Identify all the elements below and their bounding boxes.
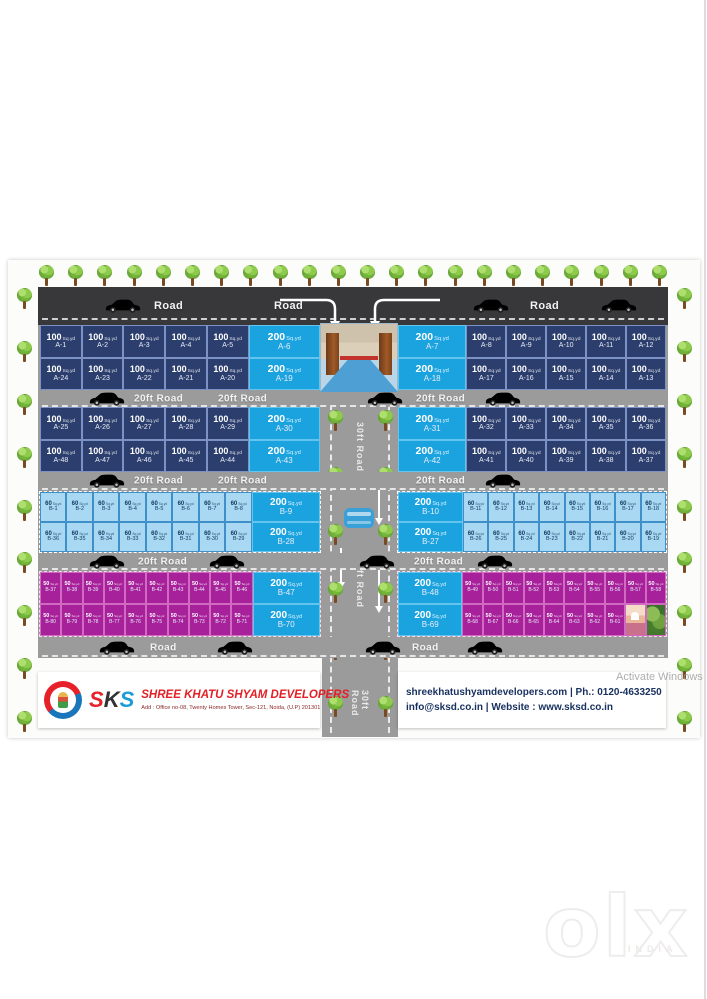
plot-B-12: 60Sq.ydB-12	[488, 492, 513, 522]
plot-B-35: 60Sq.ydB-35	[66, 522, 92, 552]
vertical-road-label: 30ft Road	[350, 690, 370, 737]
gate-banner	[340, 356, 377, 360]
plot-B-22: 60Sq.ydB-22	[565, 522, 590, 552]
plot-A-31: 200Sq.ydA-31	[398, 407, 466, 440]
plot-B-14: 60Sq.ydB-14	[539, 492, 564, 522]
plot-A-3: 100Sq.ydA-3	[123, 325, 165, 358]
plot-B-15: 60Sq.ydB-15	[565, 492, 590, 522]
plot-row: 200Sq.ydA-18100Sq.ydA-17100Sq.ydA-16100S…	[398, 358, 666, 391]
road-label: 20ft Road	[134, 476, 183, 487]
plot-A-46: 100Sq.ydA-46	[123, 440, 165, 473]
plot-A-8: 100Sq.ydA-8	[466, 325, 506, 358]
plot-B-78: 50Sq.ydB-78	[83, 604, 104, 636]
tree-icon	[16, 711, 33, 733]
plot-B-27: 200Sq.ydB-27	[398, 522, 463, 552]
plot-A-41: 100Sq.ydA-41	[466, 440, 506, 473]
car-side-icon	[366, 391, 404, 407]
plot-B-4: 60Sq.ydB-4	[119, 492, 145, 522]
plot-A-11: 100Sq.ydA-11	[586, 325, 626, 358]
plot-B-20: 60Sq.ydB-20	[615, 522, 640, 552]
plot-A-48: 100Sq.ydA-48	[40, 440, 82, 473]
plot-B-23: 60Sq.ydB-23	[539, 522, 564, 552]
tree-icon	[359, 265, 376, 287]
plot-A-4: 100Sq.ydA-4	[165, 325, 207, 358]
road-label: 20ft Road	[414, 556, 463, 567]
plot-A-17: 100Sq.ydA-17	[466, 358, 506, 391]
tree-icon	[447, 265, 464, 287]
plot-row: 200Sq.ydA-31100Sq.ydA-32100Sq.ydA-33100S…	[398, 407, 666, 440]
plot-A-47: 100Sq.ydA-47	[82, 440, 124, 473]
plot-B-69: 200Sq.ydB-69	[398, 604, 462, 636]
tree-icon	[676, 341, 693, 363]
plot-B-36: 60Sq.ydB-36	[40, 522, 66, 552]
plot-row: 60Sq.ydB-3660Sq.ydB-3560Sq.ydB-3460Sq.yd…	[40, 522, 320, 552]
road-label: 20ft Road	[134, 393, 183, 404]
plot-row: 100Sq.ydA-1100Sq.ydA-2100Sq.ydA-3100Sq.y…	[40, 325, 320, 358]
plot-B-19: 60Sq.ydB-19	[641, 522, 666, 552]
plot-B-32: 60Sq.ydB-32	[146, 522, 172, 552]
tree-icon	[476, 265, 493, 287]
plot-A-30: 200Sq.ydA-30	[249, 407, 320, 440]
tree-photo	[646, 604, 666, 636]
car-side-icon	[216, 640, 254, 656]
tree-icon	[676, 711, 693, 733]
olx-country-label: INDIA	[628, 944, 678, 954]
tree-icon	[676, 447, 693, 469]
plot-row: 100Sq.ydA-48100Sq.ydA-47100Sq.ydA-46100S…	[40, 440, 320, 473]
plot-B-9: 200Sq.ydB-9	[252, 492, 320, 522]
plot-A-40: 100Sq.ydA-40	[506, 440, 546, 473]
plot-B-46: 50Sq.ydB-46	[231, 572, 252, 604]
tree-icon	[388, 265, 405, 287]
plot-A-2: 100Sq.ydA-2	[82, 325, 124, 358]
plot-A-23: 100Sq.ydA-23	[82, 358, 124, 391]
plot-A-45: 100Sq.ydA-45	[165, 440, 207, 473]
plot-B-10: 200Sq.ydB-10	[398, 492, 463, 522]
road-dash	[42, 568, 664, 570]
plot-B-29: 60Sq.ydB-29	[225, 522, 251, 552]
plot-B-63: 50Sq.ydB-63	[564, 604, 584, 636]
sks-logo-text: SKS	[89, 689, 134, 711]
vertical-road-label: 30ft Road	[355, 422, 365, 472]
plot-block-b2-right: 200Sq.ydB-4850Sq.ydB-4950Sq.ydB-5050Sq.y…	[398, 572, 666, 636]
tree-icon	[155, 265, 172, 287]
road-label: 20ft Road	[416, 393, 465, 404]
plot-row: 100Sq.ydA-25100Sq.ydA-26100Sq.ydA-27100S…	[40, 407, 320, 440]
car-side-icon	[88, 554, 126, 570]
temple-photo	[625, 604, 645, 636]
lane-arrow-icon	[378, 568, 380, 610]
email-website: info@sksd.co.in | Website : www.sksd.co.…	[406, 700, 658, 716]
road-label: Road	[412, 642, 439, 653]
car-side-icon	[476, 554, 514, 570]
tree-icon	[301, 265, 318, 287]
plot-B-39: 50Sq.ydB-39	[83, 572, 104, 604]
plot-block-a2-left: 100Sq.ydA-25100Sq.ydA-26100Sq.ydA-27100S…	[40, 407, 320, 472]
plot-B-48: 200Sq.ydB-48	[398, 572, 462, 604]
plot-B-79: 50Sq.ydB-79	[61, 604, 82, 636]
road-label: 20ft Road	[416, 476, 465, 487]
tree-icon	[16, 288, 33, 310]
company-address: Add : Office no-08, Twenty Homes Tower, …	[141, 705, 314, 711]
road-label: 20ft Road	[218, 476, 267, 487]
plot-B-76: 50Sq.ydB-76	[125, 604, 146, 636]
bottom-road-strip: RoadRoad	[38, 637, 668, 658]
car-side-icon	[208, 554, 246, 570]
road-label: 20ft Road	[218, 393, 267, 404]
car-side-icon	[88, 391, 126, 407]
website-phone: shreekhatushyamdevelopers.com | Ph.: 012…	[406, 685, 658, 701]
road-label: 20ft Road	[138, 556, 187, 567]
plot-A-21: 100Sq.ydA-21	[165, 358, 207, 391]
car-top-icon	[344, 508, 374, 528]
plot-block-b1-right: 200Sq.ydB-1060Sq.ydB-1160Sq.ydB-1260Sq.y…	[398, 492, 666, 552]
plot-B-43: 50Sq.ydB-43	[168, 572, 189, 604]
plot-A-13: 100Sq.ydA-13	[626, 358, 666, 391]
plot-A-15: 100Sq.ydA-15	[546, 358, 586, 391]
plot-B-11: 60Sq.ydB-11	[463, 492, 488, 522]
plot-A-26: 100Sq.ydA-26	[82, 407, 124, 440]
tree-icon	[676, 500, 693, 522]
plot-B-8: 60Sq.ydB-8	[225, 492, 251, 522]
activate-windows-watermark: Activate Windows	[616, 671, 703, 683]
tree-icon	[67, 265, 84, 287]
plot-B-21: 60Sq.ydB-21	[590, 522, 615, 552]
plot-A-43: 200Sq.ydA-43	[249, 440, 320, 473]
plot-block-a1-left: 100Sq.ydA-1100Sq.ydA-2100Sq.ydA-3100Sq.y…	[40, 325, 320, 390]
road-label: Road	[150, 642, 177, 653]
plot-block-b2-left: 50Sq.ydB-3750Sq.ydB-3850Sq.ydB-3950Sq.yd…	[40, 572, 320, 636]
plot-A-27: 100Sq.ydA-27	[123, 407, 165, 440]
plot-B-67: 50Sq.ydB-67	[483, 604, 503, 636]
plot-B-2: 60Sq.ydB-2	[66, 492, 92, 522]
plot-A-36: 100Sq.ydA-36	[626, 407, 666, 440]
tree-icon	[417, 265, 434, 287]
tree-icon	[676, 288, 693, 310]
plot-B-72: 50Sq.ydB-72	[210, 604, 231, 636]
plot-A-9: 100Sq.ydA-9	[506, 325, 546, 358]
plot-B-52: 50Sq.ydB-52	[524, 572, 544, 604]
plot-A-19: 200Sq.ydA-19	[249, 358, 320, 391]
plot-A-14: 100Sq.ydA-14	[586, 358, 626, 391]
20ft-road-strip-2: 20ft Road20ft Road20ft Road	[38, 472, 668, 490]
gate-pillar	[326, 333, 339, 376]
tree-icon	[676, 552, 693, 574]
car-side-icon	[358, 554, 396, 570]
plot-B-5: 60Sq.ydB-5	[146, 492, 172, 522]
plot-A-20: 100Sq.ydA-20	[207, 358, 249, 391]
plot-row: 100Sq.ydA-24100Sq.ydA-23100Sq.ydA-22100S…	[40, 358, 320, 391]
plot-block-a1-right: 200Sq.ydA-7100Sq.ydA-8100Sq.ydA-9100Sq.y…	[398, 325, 666, 390]
tree-icon	[16, 394, 33, 416]
plot-B-40: 50Sq.ydB-40	[104, 572, 125, 604]
car-side-icon	[600, 298, 638, 314]
plot-B-65: 50Sq.ydB-65	[524, 604, 544, 636]
gate-pillar	[379, 333, 392, 376]
plot-B-62: 50Sq.ydB-62	[585, 604, 605, 636]
entrance-gate-photo	[320, 323, 398, 392]
plot-B-70: 200Sq.ydB-70	[253, 604, 320, 636]
plot-B-38: 50Sq.ydB-38	[61, 572, 82, 604]
plot-B-61: 50Sq.ydB-61	[605, 604, 625, 636]
tree-icon	[272, 265, 289, 287]
tree-icon	[16, 500, 33, 522]
tree-icon	[622, 265, 639, 287]
plot-B-57: 50Sq.ydB-57	[625, 572, 645, 604]
tree-border-left	[12, 288, 36, 733]
sks-logo	[44, 681, 82, 719]
plot-B-31: 60Sq.ydB-31	[172, 522, 198, 552]
plot-B-66: 50Sq.ydB-66	[503, 604, 523, 636]
tree-icon	[213, 265, 230, 287]
road-label: Road	[530, 300, 559, 312]
plot-B-41: 50Sq.ydB-41	[125, 572, 146, 604]
plot-B-64: 50Sq.ydB-64	[544, 604, 564, 636]
plot-A-1: 100Sq.ydA-1	[40, 325, 82, 358]
plot-A-42: 200Sq.ydA-42	[398, 440, 466, 473]
plot-B-74: 50Sq.ydB-74	[168, 604, 189, 636]
plot-B-55: 50Sq.ydB-55	[585, 572, 605, 604]
tree-icon	[16, 658, 33, 680]
plot-row: 200Sq.ydB-2760Sq.ydB-2660Sq.ydB-2560Sq.y…	[398, 522, 666, 552]
tree-icon	[651, 265, 668, 287]
tree-icon	[38, 265, 55, 287]
car-side-icon	[484, 391, 522, 407]
site-plan-poster: 30ft Road 30ft Road 30ft Road RoadRoadRo…	[8, 260, 700, 738]
plot-A-39: 100Sq.ydA-39	[546, 440, 586, 473]
plot-B-45: 50Sq.ydB-45	[210, 572, 231, 604]
tree-icon	[16, 605, 33, 627]
tree-icon	[505, 265, 522, 287]
plot-B-6: 60Sq.ydB-6	[172, 492, 198, 522]
developer-panel: SKS SHREE KHATU SHYAM DEVELOPERS Add : O…	[38, 672, 320, 728]
plot-B-77: 50Sq.ydB-77	[104, 604, 125, 636]
plot-B-16: 60Sq.ydB-16	[590, 492, 615, 522]
road-dash	[42, 488, 664, 490]
plot-B-34: 60Sq.ydB-34	[93, 522, 119, 552]
plot-B-28: 200Sq.ydB-28	[252, 522, 320, 552]
plot-B-51: 50Sq.ydB-51	[503, 572, 523, 604]
20ft-road-strip-3: 20ft Road20ft Road	[38, 553, 668, 570]
plot-A-22: 100Sq.ydA-22	[123, 358, 165, 391]
plot-A-24: 100Sq.ydA-24	[40, 358, 82, 391]
plot-B-24: 60Sq.ydB-24	[514, 522, 539, 552]
plot-A-18: 200Sq.ydA-18	[398, 358, 466, 391]
plot-A-16: 100Sq.ydA-16	[506, 358, 546, 391]
plot-B-13: 60Sq.ydB-13	[514, 492, 539, 522]
tree-icon	[16, 447, 33, 469]
plot-B-80: 50Sq.ydB-80	[40, 604, 61, 636]
tree-icon	[96, 265, 113, 287]
plot-row: 200Sq.ydA-42100Sq.ydA-41100Sq.ydA-40100S…	[398, 440, 666, 473]
tree-icon	[563, 265, 580, 287]
plot-A-28: 100Sq.ydA-28	[165, 407, 207, 440]
car-side-icon	[364, 640, 402, 656]
plot-B-56: 50Sq.ydB-56	[605, 572, 625, 604]
car-side-icon	[472, 298, 510, 314]
plot-row: 200Sq.ydA-7100Sq.ydA-8100Sq.ydA-9100Sq.y…	[398, 325, 666, 358]
plot-B-25: 60Sq.ydB-25	[488, 522, 513, 552]
plot-B-49: 50Sq.ydB-49	[462, 572, 482, 604]
plot-B-26: 60Sq.ydB-26	[463, 522, 488, 552]
plot-B-17: 60Sq.ydB-17	[615, 492, 640, 522]
plot-B-58: 50Sq.ydB-58	[646, 572, 666, 604]
plot-B-53: 50Sq.ydB-53	[544, 572, 564, 604]
plot-A-12: 100Sq.ydA-12	[626, 325, 666, 358]
tree-icon	[593, 265, 610, 287]
car-side-icon	[466, 640, 504, 656]
plot-A-35: 100Sq.ydA-35	[586, 407, 626, 440]
plot-A-38: 100Sq.ydA-38	[586, 440, 626, 473]
plot-row: 50Sq.ydB-8050Sq.ydB-7950Sq.ydB-7850Sq.yd…	[40, 604, 320, 636]
plot-row: 50Sq.ydB-3750Sq.ydB-3850Sq.ydB-3950Sq.yd…	[40, 572, 320, 604]
tree-border-top	[38, 262, 668, 287]
plot-B-68: 50Sq.ydB-68	[462, 604, 482, 636]
plot-A-32: 100Sq.ydA-32	[466, 407, 506, 440]
app-edge-line	[704, 0, 706, 999]
tree-icon	[184, 265, 201, 287]
plot-row: 200Sq.ydB-6950Sq.ydB-6850Sq.ydB-6750Sq.y…	[398, 604, 666, 636]
tree-icon	[16, 552, 33, 574]
plot-B-42: 50Sq.ydB-42	[146, 572, 167, 604]
road-label: Road	[154, 300, 183, 312]
plot-A-7: 200Sq.ydA-7	[398, 325, 466, 358]
plot-B-37: 50Sq.ydB-37	[40, 572, 61, 604]
plot-A-33: 100Sq.ydA-33	[506, 407, 546, 440]
screenshot-canvas: 30ft Road 30ft Road 30ft Road RoadRoadRo…	[0, 0, 707, 999]
plot-B-75: 50Sq.ydB-75	[146, 604, 167, 636]
tree-icon	[534, 265, 551, 287]
tree-icon	[126, 265, 143, 287]
plot-B-1: 60Sq.ydB-1	[40, 492, 66, 522]
car-side-icon	[88, 473, 126, 489]
plot-B-73: 50Sq.ydB-73	[189, 604, 210, 636]
plot-A-37: 100Sq.ydA-37	[626, 440, 666, 473]
company-name: SHREE KHATU SHYAM DEVELOPERS	[141, 689, 314, 702]
plot-B-7: 60Sq.ydB-7	[199, 492, 225, 522]
plot-B-54: 50Sq.ydB-54	[564, 572, 584, 604]
tree-icon	[676, 605, 693, 627]
plot-A-44: 100Sq.ydA-44	[207, 440, 249, 473]
plot-row: 60Sq.ydB-160Sq.ydB-260Sq.ydB-360Sq.ydB-4…	[40, 492, 320, 522]
plot-B-44: 50Sq.ydB-44	[189, 572, 210, 604]
plot-B-3: 60Sq.ydB-3	[93, 492, 119, 522]
plot-row: 200Sq.ydB-4850Sq.ydB-4950Sq.ydB-5050Sq.y…	[398, 572, 666, 604]
tree-border-right	[672, 288, 696, 733]
plot-B-18: 60Sq.ydB-18	[641, 492, 666, 522]
tree-icon	[242, 265, 259, 287]
plot-A-34: 100Sq.ydA-34	[546, 407, 586, 440]
plot-A-5: 100Sq.ydA-5	[207, 325, 249, 358]
plot-B-30: 60Sq.ydB-30	[199, 522, 225, 552]
plot-row: 200Sq.ydB-1060Sq.ydB-1160Sq.ydB-1260Sq.y…	[398, 492, 666, 522]
tree-icon	[676, 394, 693, 416]
tree-icon	[16, 341, 33, 363]
tree-icon	[330, 265, 347, 287]
car-side-icon	[104, 298, 142, 314]
plot-B-71: 50Sq.ydB-71	[231, 604, 252, 636]
20ft-road-strip-1: 20ft Road20ft Road20ft Road	[38, 390, 668, 407]
plot-B-47: 200Sq.ydB-47	[253, 572, 320, 604]
car-side-icon	[484, 473, 522, 489]
plot-block-b1-left: 60Sq.ydB-160Sq.ydB-260Sq.ydB-360Sq.ydB-4…	[40, 492, 320, 552]
olx-watermark: olx	[543, 878, 690, 976]
plot-block-a2-right: 200Sq.ydA-31100Sq.ydA-32100Sq.ydA-33100S…	[398, 407, 666, 472]
plot-A-29: 100Sq.ydA-29	[207, 407, 249, 440]
plot-A-25: 100Sq.ydA-25	[40, 407, 82, 440]
car-side-icon	[98, 640, 136, 656]
plot-B-50: 50Sq.ydB-50	[483, 572, 503, 604]
plot-A-6: 200Sq.ydA-6	[249, 325, 320, 358]
plot-A-10: 100Sq.ydA-10	[546, 325, 586, 358]
plot-B-33: 60Sq.ydB-33	[119, 522, 145, 552]
